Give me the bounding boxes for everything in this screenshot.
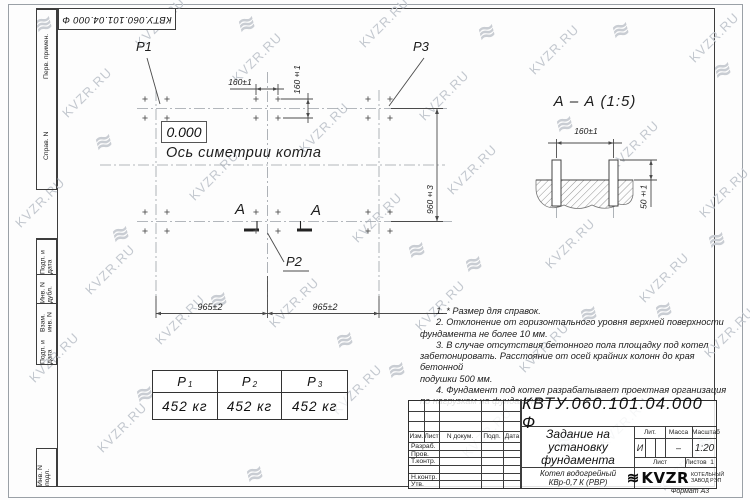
- section-letter-right: А: [311, 202, 321, 219]
- revision-grid: Изм. Лист N докум. Подп. Дата Разраб. Пр…: [409, 401, 521, 488]
- load-table-header-p3: P3: [282, 371, 347, 393]
- rev-header-data: Дата: [503, 433, 521, 440]
- kvzr-logo-subtitle-line2: ЗАВОД РЭП: [691, 478, 724, 484]
- level-mark-value: 0.000: [166, 124, 201, 140]
- drawing-title-line2: установку: [548, 441, 608, 454]
- lit-header: Лит.: [635, 429, 665, 436]
- load-point-p1-label: P1: [136, 39, 152, 54]
- drawing-title-line1: Задание на: [546, 428, 610, 441]
- side-strip-middle: Подп. и дата Инв. N дубл. Взам. инв. N П…: [36, 238, 57, 365]
- product-name: Котел водогрейный КВр-0,7 К (РВР): [521, 468, 634, 488]
- section-dim-160: 160±1: [568, 126, 604, 136]
- note-line-2: 2. Отклонение от горизонтального уровня …: [420, 317, 732, 328]
- product-name-line2: КВр-0,7 К (РВР): [549, 478, 608, 487]
- sheet-label: Лист: [635, 459, 685, 466]
- mass-header: Масса: [665, 429, 692, 436]
- load-table-value-p1: 452 кг: [153, 393, 218, 419]
- company-logo: ≋ KVZR КОТЕЛЬНЫЙ ЗАВОД РЭП: [634, 468, 716, 488]
- sig-prov: Пров.: [411, 451, 429, 458]
- load-table: P1P2P3452 кг452 кг452 кг: [152, 370, 348, 420]
- top-stamp-text: КВТУ.060.101.04.000 Ф: [62, 14, 172, 25]
- note-line-5: забетонировать. Расстояние от осей крайн…: [420, 351, 732, 374]
- side-strip-top: Перв. примен. Справ. N: [36, 8, 57, 190]
- dim-965-left: 965±2: [180, 302, 240, 312]
- dim-965-right: 965±2: [295, 302, 355, 312]
- sig-razrab: Разраб.: [411, 443, 435, 450]
- kvzr-logo-icon: ≋: [627, 471, 640, 486]
- dim-960: 960±3: [424, 182, 436, 218]
- drawing-title: Задание на установку фундамента: [521, 427, 634, 468]
- side-strip-bottom: Инв. N подл.: [36, 448, 57, 487]
- symmetry-axis-label: Ось симетрии котла: [166, 145, 321, 161]
- sig-utv: Утв.: [411, 481, 424, 488]
- side-label-sprav-n: Справ. N: [37, 102, 56, 189]
- load-point-p2-label: P2: [286, 254, 302, 269]
- side-label-podp-data-1: Подп. и дата: [37, 239, 56, 274]
- dim-160-horizontal: 160±1: [224, 77, 256, 87]
- side-label-inv-podl: Инв. N подл.: [37, 449, 51, 486]
- mass-value: –: [665, 443, 692, 453]
- product-name-line1: Котел водогрейный: [540, 469, 616, 478]
- note-line-6: подушки 500 мм.: [420, 374, 732, 385]
- kvzr-logo-subtitle: КОТЕЛЬНЫЙ ЗАВОД РЭП: [691, 472, 724, 484]
- load-table-value-p3: 452 кг: [282, 393, 347, 419]
- side-label-perv-primen: Перв. примен.: [37, 9, 56, 102]
- technical-notes: 1. * Размер для справок.2. Отклонение от…: [420, 306, 732, 408]
- lit-mass-scale-block: Лит. Масса Масштаб И – 1:20 Лист Листов …: [634, 427, 716, 468]
- note-line-1: 1. * Размер для справок.: [420, 306, 732, 317]
- side-label-vzam-inv: Взам. инв. N: [37, 303, 56, 332]
- side-label-inv-dubl: Инв. N дубл.: [37, 274, 56, 303]
- note-line-3: фундамента не более 10 мм.: [420, 329, 732, 340]
- title-block: Изм. Лист N докум. Подп. Дата Разраб. Пр…: [408, 400, 717, 489]
- note-line-4: 3. В случае отсутствия бетонного пола пл…: [420, 340, 732, 351]
- drawing-sheet: KVZR.RUKVZR.RUKVZR.RUKVZR.RUKVZR.RUKVZR.…: [0, 0, 750, 500]
- kvzr-logo-text: KVZR: [641, 469, 689, 487]
- rev-header-ndokum: N докум.: [439, 433, 481, 440]
- load-table-value-p2: 452 кг: [218, 393, 283, 419]
- drawing-title-line3: фундамента: [541, 454, 615, 467]
- format-label: Формат А3: [620, 488, 750, 495]
- rev-header-podp: Подп.: [481, 433, 503, 440]
- sig-nkontr: Н.контр.: [411, 474, 437, 481]
- doc-number: КВТУ.060.101.04.000 Ф: [521, 401, 716, 427]
- rev-header-list: Лист: [424, 433, 439, 440]
- section-dim-50: 50±1: [638, 184, 649, 210]
- scale-value: 1:20: [692, 443, 717, 454]
- sig-tkontr: Т.контр.: [411, 458, 436, 465]
- load-table-header-p2: P2: [218, 371, 283, 393]
- top-left-doc-stamp: КВТУ.060.101.04.000 Ф: [58, 8, 176, 30]
- scale-header: Масштаб: [692, 429, 717, 436]
- load-table-header-p1: P1: [153, 371, 218, 393]
- side-label-podp-data-2: Подп. и дата: [37, 332, 56, 364]
- dim-160-vertical: 160±1: [291, 64, 303, 96]
- lit-value: И: [635, 443, 645, 453]
- load-point-p3-label: P3: [413, 39, 429, 54]
- sheets-label: Листов: [685, 459, 707, 466]
- section-view-title: А – А (1:5): [540, 93, 650, 110]
- sheets-value: 1: [707, 459, 717, 466]
- rev-header-izm: Изм.: [409, 433, 424, 440]
- section-letter-left: А: [235, 201, 245, 218]
- level-mark-box: 0.000: [161, 121, 207, 143]
